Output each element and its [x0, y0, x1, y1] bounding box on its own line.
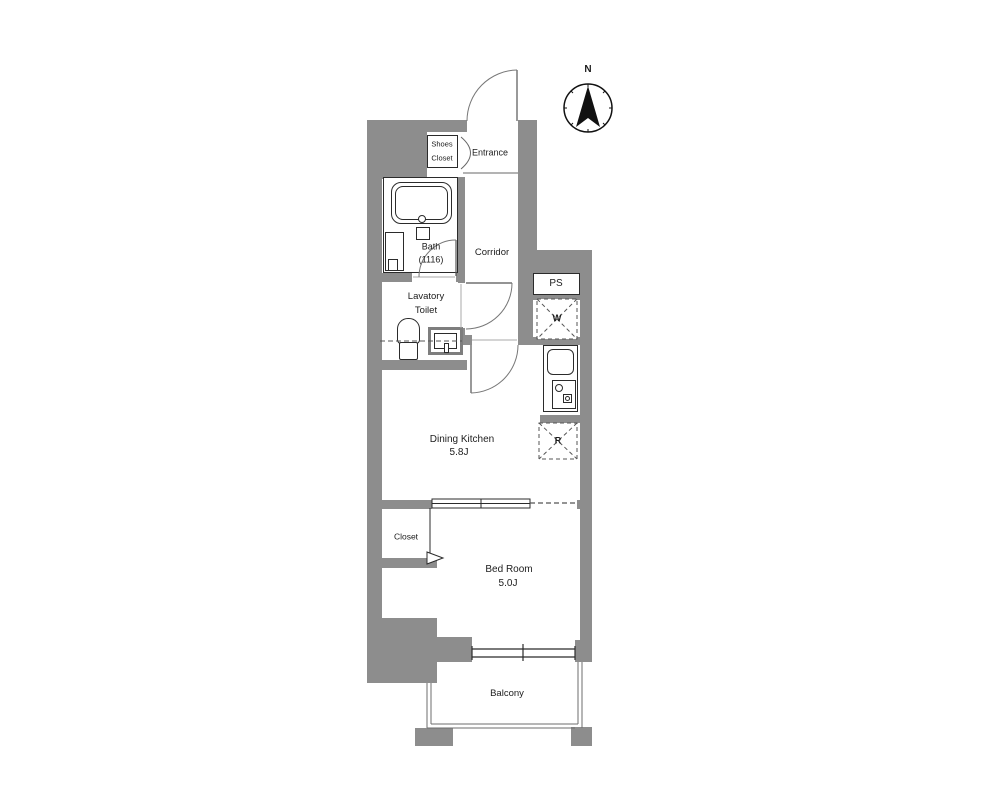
lavatory-label-line1: Lavatory	[408, 291, 444, 303]
dining-kitchen-size-label: 5.8J	[450, 447, 469, 460]
balcony-label: Balcony	[490, 688, 524, 700]
pipe-space-label: PS	[549, 278, 562, 291]
closet-front	[427, 508, 443, 564]
lavatory-label-line2: Toilet	[415, 305, 437, 317]
balcony-window	[472, 644, 575, 661]
shoes-closet-label-line1: Shoes	[431, 139, 452, 148]
shoes-closet-door-arc	[461, 137, 471, 169]
shoes-closet-label-line2: Closet	[431, 153, 452, 162]
dining-kitchen-door	[471, 340, 518, 393]
entrance-label: Entrance	[472, 147, 508, 158]
plan-linework	[0, 0, 999, 801]
bath-label: Bath	[422, 241, 441, 252]
bedroom-size-label: 5.0J	[499, 578, 518, 591]
fridge-label: R	[555, 435, 562, 446]
bedroom-label: Bed Room	[485, 564, 532, 577]
dining-kitchen-label: Dining Kitchen	[430, 434, 494, 447]
bath-size-label: (1116)	[419, 254, 444, 265]
compass-icon	[564, 84, 612, 132]
closet-label: Closet	[394, 532, 418, 543]
washer-label: W	[553, 313, 562, 325]
compass-north-label: N	[584, 64, 591, 77]
entrance-door	[467, 70, 517, 121]
corridor-label: Corridor	[475, 247, 509, 259]
sliding-partition	[432, 499, 577, 508]
floor-plan: Shoes Closet Entrance Bath (1116) Corrid…	[0, 0, 999, 801]
lavatory-door	[461, 283, 512, 329]
